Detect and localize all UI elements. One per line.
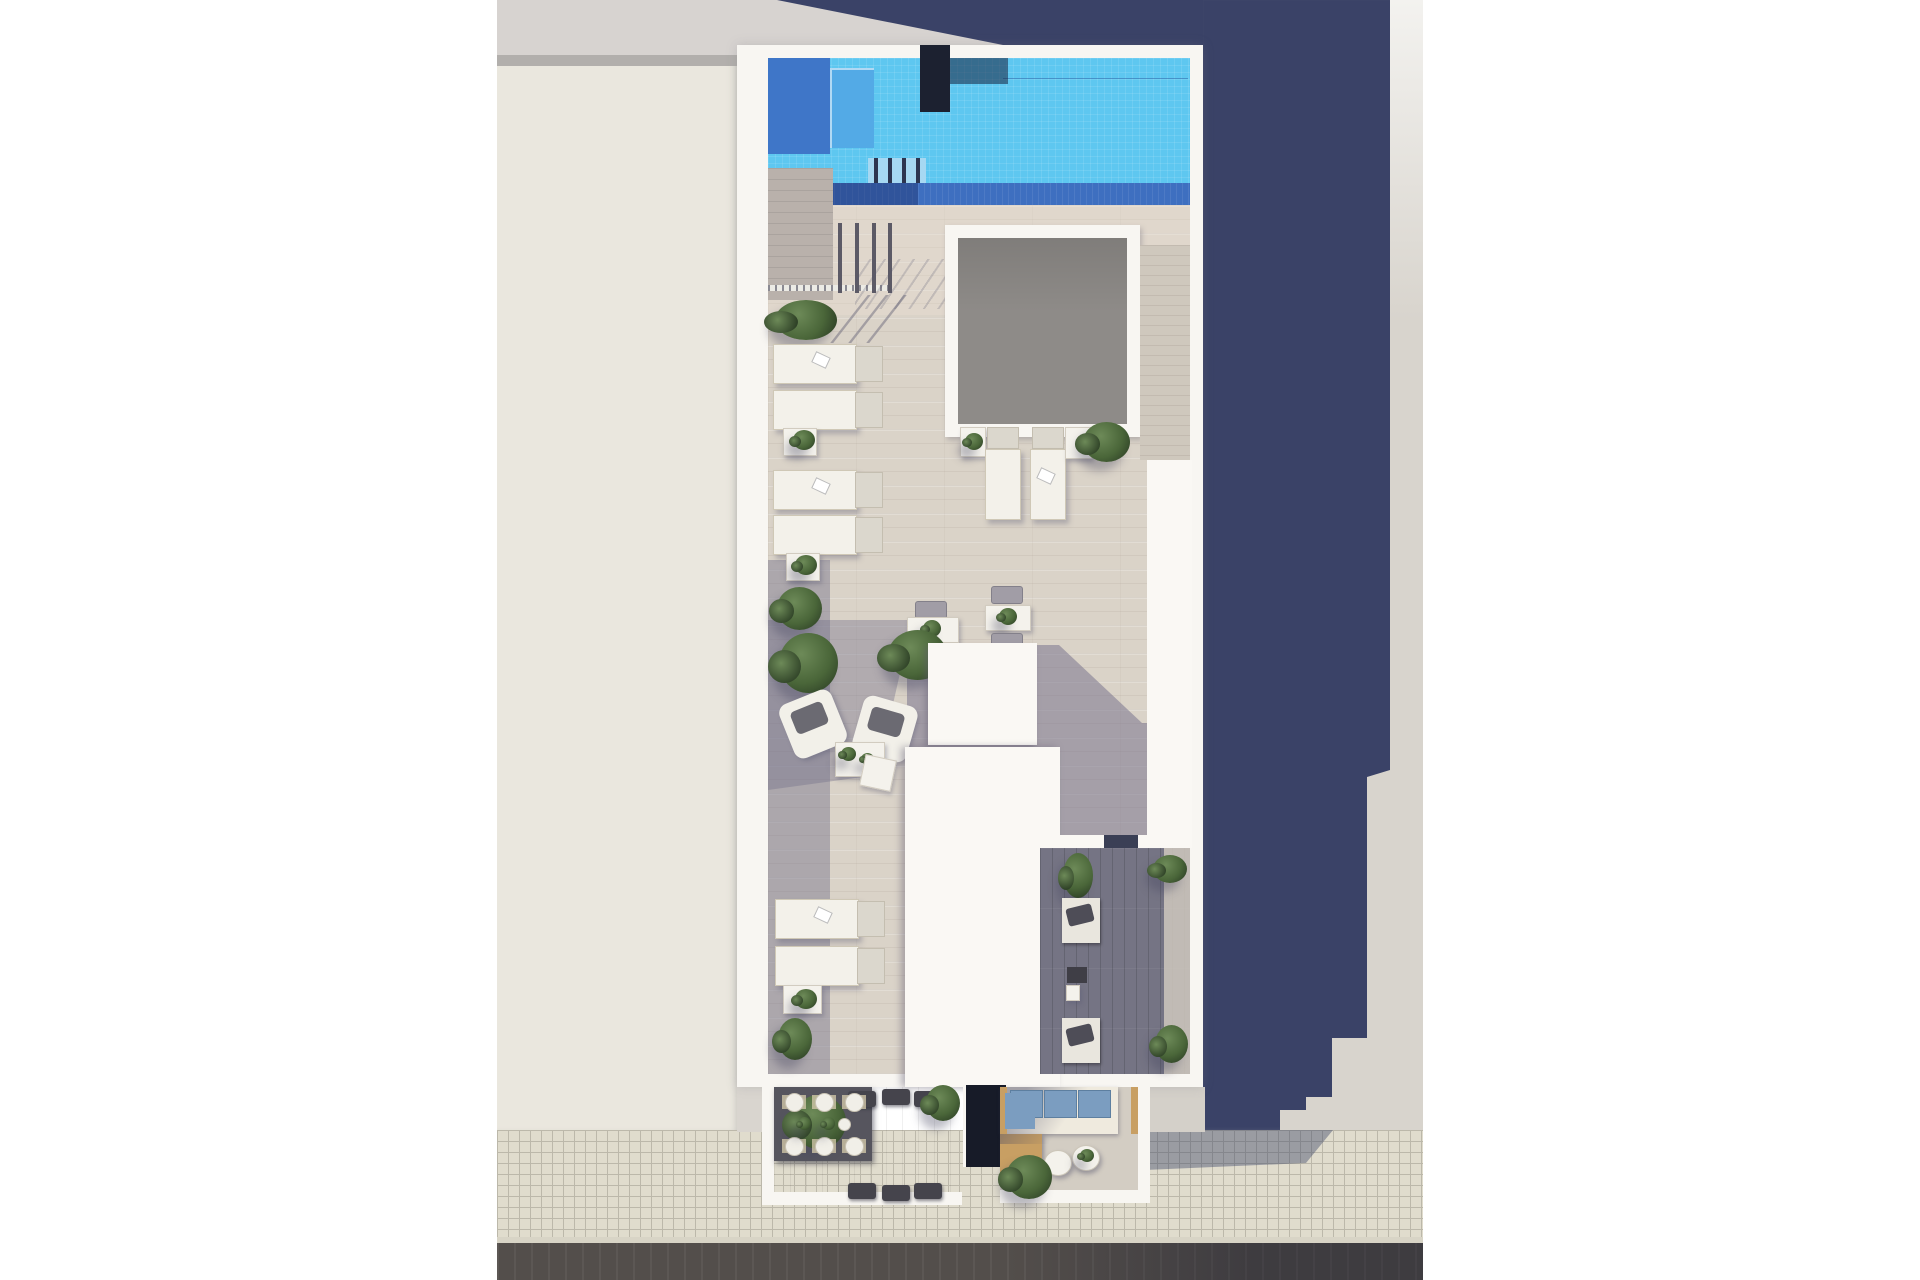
sun-lounger — [983, 425, 1022, 520]
chimney-block — [920, 45, 950, 112]
plate — [815, 1093, 834, 1112]
sofa-terrace — [1000, 1087, 1150, 1203]
low-coffee-table — [1067, 967, 1087, 983]
sun-lounger — [773, 513, 885, 555]
plate — [845, 1137, 864, 1156]
daybed — [1062, 1018, 1100, 1063]
parapet-gap — [1104, 835, 1138, 848]
roof-volume-small — [928, 643, 1037, 745]
potted-plant — [795, 989, 817, 1009]
dining-terrace — [762, 1087, 962, 1205]
ground-gap-left — [737, 1087, 765, 1132]
planter-bush — [1153, 855, 1187, 883]
roof-volume-large — [905, 747, 1060, 1087]
pool-shadow-corner — [768, 58, 830, 154]
dining-chair — [882, 1089, 910, 1105]
rooftop-plan-render — [0, 0, 1920, 1280]
dining-chair — [848, 1183, 876, 1199]
potted-plant — [793, 430, 815, 450]
pitcher — [838, 1118, 851, 1131]
daybed — [1062, 898, 1100, 943]
ground-gap-right — [1145, 1087, 1205, 1132]
sidewalk-shadow — [1145, 1130, 1335, 1172]
pool-step-platform — [830, 68, 874, 148]
planter-bush — [926, 1085, 960, 1121]
roof-plan — [737, 45, 1203, 1087]
neighbor-roof-edge — [497, 55, 740, 66]
ground-top — [740, 0, 1203, 45]
skylight-opening — [958, 238, 1127, 424]
ottoman — [859, 754, 897, 792]
pool-side-decking — [768, 168, 833, 300]
dining-chair — [914, 1183, 942, 1199]
skylight-courtyard — [945, 225, 1140, 437]
dining-chair — [882, 1185, 910, 1201]
neighbor-building — [497, 0, 740, 1130]
table-plant — [798, 1117, 811, 1130]
pool-tile-lane — [1003, 78, 1188, 79]
ground-right — [1203, 0, 1423, 1237]
road-shadow — [1006, 1243, 1423, 1280]
potted-plant — [965, 433, 983, 450]
plate — [815, 1137, 834, 1156]
sun-lounger — [773, 342, 885, 384]
plate — [845, 1093, 864, 1112]
planter-bush — [779, 633, 838, 693]
planter-bush — [1083, 422, 1130, 462]
sofa-cushion — [1044, 1090, 1077, 1118]
potted-plant — [1080, 1149, 1094, 1162]
building-cast-shadow — [1197, 0, 1423, 1134]
sun-lounger — [775, 944, 887, 986]
planter-bush — [775, 300, 837, 340]
sofa-armrest — [1131, 1087, 1138, 1134]
sun-lounger — [773, 388, 885, 430]
road — [497, 1243, 1423, 1280]
planter-bush — [777, 587, 822, 630]
deck-strip-right — [1140, 245, 1190, 460]
plate — [785, 1137, 804, 1156]
potted-plant — [795, 555, 817, 575]
sun-lounger — [1028, 425, 1067, 520]
table-plant — [822, 1117, 835, 1130]
planter-bush — [778, 1018, 812, 1060]
blue-cushion — [1005, 1093, 1035, 1129]
planter-bush — [1063, 853, 1093, 898]
sun-lounger — [773, 468, 885, 510]
sofa-cushion — [1078, 1090, 1111, 1118]
potted-plant — [999, 608, 1017, 625]
planter-bush — [1006, 1155, 1052, 1199]
sun-lounger — [775, 897, 887, 939]
building-cast-shadow-top — [740, 0, 1203, 45]
planter-bush — [1155, 1025, 1188, 1063]
bistro-chair — [991, 586, 1023, 604]
plate — [785, 1093, 804, 1112]
side-table — [1066, 985, 1080, 1001]
side-wall-top — [1147, 460, 1192, 835]
neighbor-roof-block — [497, 0, 740, 55]
potted-plant — [841, 747, 856, 761]
chimney-shadow — [950, 58, 1008, 84]
railing-post — [838, 223, 842, 293]
